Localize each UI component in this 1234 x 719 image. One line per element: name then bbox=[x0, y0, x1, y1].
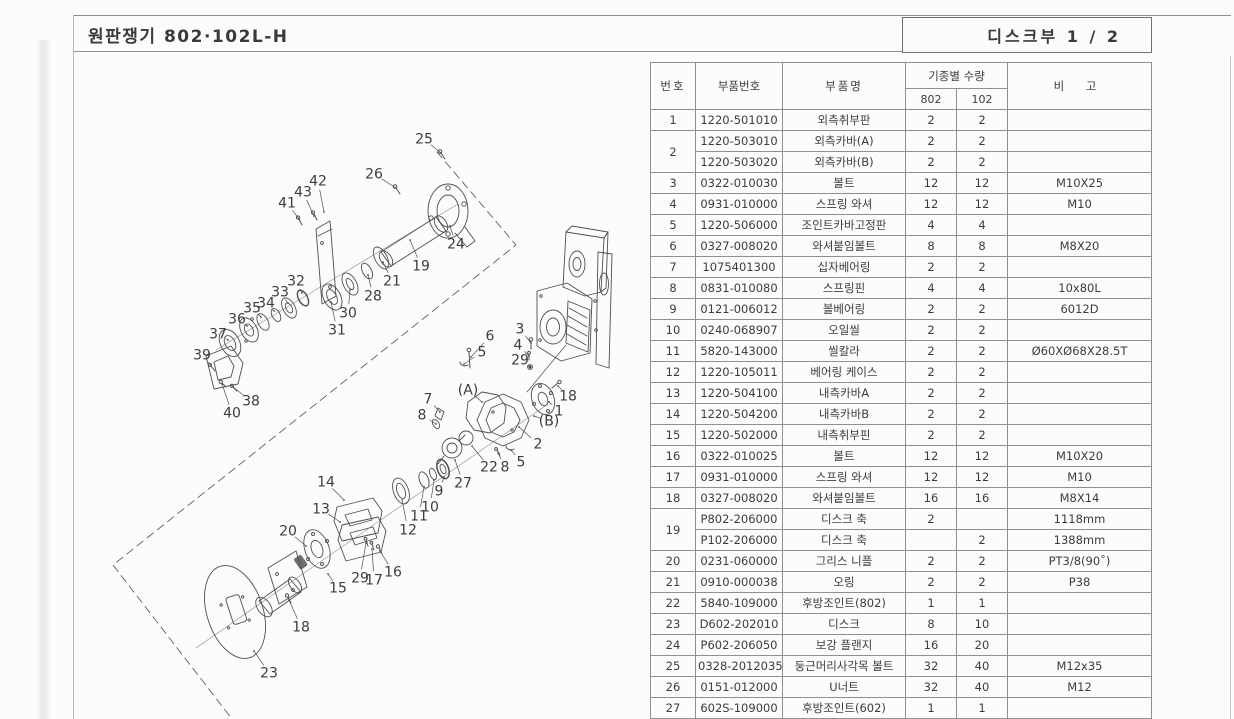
table-row: 200231-060000그리스 니플22PT3/8(90˚) bbox=[651, 551, 1152, 572]
table-row: 11220-501010외측취부판22 bbox=[651, 110, 1152, 131]
table-row: 30322-010030볼트1212M10X25 bbox=[651, 173, 1152, 194]
cell-qty-102: 12 bbox=[957, 173, 1008, 194]
callout-leader-line bbox=[320, 190, 324, 212]
diagram-callout-label: 21 bbox=[383, 274, 401, 290]
table-row: 24P602-206050보강 플랜지1620 bbox=[651, 635, 1152, 656]
cell-remark bbox=[1008, 425, 1152, 446]
cell-qty-802: 32 bbox=[906, 677, 957, 698]
callout-leader-dot bbox=[323, 211, 325, 213]
cell-qty-102: 2 bbox=[957, 299, 1008, 320]
callout-leader-dot bbox=[463, 363, 465, 365]
cell-part-name: 조인트카바고정판 bbox=[783, 215, 906, 236]
callout-leader-dot bbox=[530, 342, 532, 344]
callout-leader-line bbox=[331, 302, 335, 321]
cell-qty-102: 2 bbox=[957, 257, 1008, 278]
cell-no: 14 bbox=[651, 404, 696, 425]
callout-leader-dot bbox=[210, 365, 212, 367]
cell-qty-102 bbox=[957, 509, 1008, 530]
universal-joint-parts-22-27 bbox=[438, 431, 473, 464]
diagram-callout-label: 20 bbox=[279, 524, 297, 540]
table-row: 23D602-202010디스크810 bbox=[651, 614, 1152, 635]
cell-remark: 1388mm bbox=[1008, 530, 1152, 551]
diagram-callout-label: 4 bbox=[514, 338, 523, 354]
callout-leader-line bbox=[307, 200, 314, 216]
cell-part-no: 0931-010000 bbox=[696, 194, 783, 215]
table-row: 1220-503020외측카바(B)22 bbox=[651, 152, 1152, 173]
cell-qty-102: 2 bbox=[957, 551, 1008, 572]
cell-remark bbox=[1008, 215, 1152, 236]
cell-remark bbox=[1008, 131, 1152, 152]
callout-leader-dot bbox=[227, 339, 229, 341]
diagram-callout-label: 26 bbox=[365, 167, 383, 183]
cell-remark bbox=[1008, 404, 1152, 425]
cell-part-name: 볼트 bbox=[783, 446, 906, 467]
cell-part-name: 스프링 와셔 bbox=[783, 467, 906, 488]
cell-no: 24 bbox=[651, 635, 696, 656]
table-row: 71075401300십자베어링22 bbox=[651, 257, 1152, 278]
diagram-callout-label: 40 bbox=[223, 406, 241, 422]
diagram-callout-label: 37 bbox=[209, 327, 227, 343]
cell-remark: M10X20 bbox=[1008, 446, 1152, 467]
cell-qty-802: 12 bbox=[906, 446, 957, 467]
end-cover-part-38-40 bbox=[206, 346, 243, 389]
diagram-callout-label: 36 bbox=[228, 312, 246, 328]
cell-qty-102: 2 bbox=[957, 404, 1008, 425]
cell-part-no: 0151-012000 bbox=[696, 677, 783, 698]
table-row: 151220-502000내측취부핀22 bbox=[651, 425, 1152, 446]
callout-leader-dot bbox=[246, 325, 248, 327]
cell-no: 16 bbox=[651, 446, 696, 467]
callout-leader-dot bbox=[470, 356, 472, 358]
cell-part-no: 0322-010030 bbox=[696, 173, 783, 194]
cell-part-name: 오일씰 bbox=[783, 320, 906, 341]
cell-qty-102: 2 bbox=[957, 362, 1008, 383]
table-row: 80831-010080스프링핀4410x80L bbox=[651, 278, 1152, 299]
cell-part-no: 1220-501010 bbox=[696, 110, 783, 131]
callout-leader-line bbox=[292, 210, 299, 219]
cell-part-name: 와셔붙임볼트 bbox=[783, 236, 906, 257]
cell-qty-102: 20 bbox=[957, 635, 1008, 656]
diagram-callout-label: 38 bbox=[242, 394, 260, 410]
cell-no: 3 bbox=[651, 173, 696, 194]
cell-remark bbox=[1008, 320, 1152, 341]
cell-no: 15 bbox=[651, 425, 696, 446]
cell-qty-102: 4 bbox=[957, 278, 1008, 299]
callout-leader-dot bbox=[510, 449, 512, 451]
cell-part-no: 0910-000038 bbox=[696, 572, 783, 593]
cell-qty-802: 2 bbox=[906, 320, 957, 341]
callout-leader-dot bbox=[379, 550, 381, 552]
cell-remark: PT3/8(90˚) bbox=[1008, 551, 1152, 572]
cell-part-no: 1220-503010 bbox=[696, 131, 783, 152]
cell-qty-102: 12 bbox=[957, 446, 1008, 467]
diagram-callouts: 2526424341241921283031323334353637393840… bbox=[193, 132, 577, 682]
table-row: 60327-008020와셔붙임볼트88M8X20 bbox=[651, 236, 1152, 257]
cell-remark: M12x35 bbox=[1008, 656, 1152, 677]
callout-leader-dot bbox=[382, 261, 384, 263]
cell-part-no: 0327-008020 bbox=[696, 488, 783, 509]
cell-no: 26 bbox=[651, 677, 696, 698]
callout-leader-dot bbox=[533, 415, 535, 417]
cell-qty-802: 2 bbox=[906, 341, 957, 362]
cell-no: 17 bbox=[651, 467, 696, 488]
callout-leader-line bbox=[455, 460, 460, 474]
diagram-callout-label: 31 bbox=[328, 323, 346, 339]
cell-remark: M8X14 bbox=[1008, 488, 1152, 509]
cell-no: 4 bbox=[651, 194, 696, 215]
cell-no: 18 bbox=[651, 488, 696, 509]
ring-part-10 bbox=[428, 467, 438, 480]
cell-remark: M10X25 bbox=[1008, 173, 1152, 194]
cell-part-name: 디스크 축 bbox=[783, 509, 906, 530]
gearbox-drawing bbox=[527, 226, 612, 392]
diagram-callout-label: 7 bbox=[424, 392, 433, 408]
cell-qty-802: 12 bbox=[906, 194, 957, 215]
cell-part-no: 0328-2012035 bbox=[696, 656, 783, 677]
callout-leader-dot bbox=[557, 385, 559, 387]
table-row: 180327-008020와셔붙임볼트1616M8X14 bbox=[651, 488, 1152, 509]
callout-leader-line bbox=[472, 446, 483, 460]
parts-table-body: 11220-501010외측취부판2221220-503010외측카바(A)22… bbox=[651, 110, 1152, 719]
cell-qty-102: 10 bbox=[957, 614, 1008, 635]
callout-leader-dot bbox=[529, 366, 531, 368]
diagram-callout-label: 2 bbox=[534, 437, 543, 453]
cell-qty-102: 2 bbox=[957, 425, 1008, 446]
callout-leader-line bbox=[526, 336, 531, 343]
diagram-callout-label: 23 bbox=[260, 666, 278, 682]
callout-leader-dot bbox=[371, 548, 373, 550]
cell-remark bbox=[1008, 635, 1152, 656]
diagram-callout-label: 39 bbox=[193, 348, 211, 364]
diagram-callout-label: 5 bbox=[478, 345, 487, 361]
callout-leader-dot bbox=[301, 292, 303, 294]
cell-qty-102: 2 bbox=[957, 530, 1008, 551]
cell-no: 27 bbox=[651, 698, 696, 719]
table-row: 40931-010000스프링 와셔1212M10 bbox=[651, 194, 1152, 215]
cell-qty-102: 40 bbox=[957, 656, 1008, 677]
cell-remark: M10 bbox=[1008, 467, 1152, 488]
diagram-callout-label: 14 bbox=[317, 475, 335, 491]
cell-part-no: 5820-143000 bbox=[696, 341, 783, 362]
cell-remark: M10 bbox=[1008, 194, 1152, 215]
table-row: 225840-109000후방조인트(802)11 bbox=[651, 593, 1152, 614]
cell-no: 25 bbox=[651, 656, 696, 677]
cell-part-name: 후방조인트(602) bbox=[783, 698, 906, 719]
cell-part-no: 0240-068907 bbox=[696, 320, 783, 341]
callout-leader-line bbox=[380, 551, 388, 564]
header-part-no: 부품번호 bbox=[696, 63, 783, 110]
cell-qty-102: 12 bbox=[957, 467, 1008, 488]
callout-leader-dot bbox=[288, 599, 290, 601]
seal-collar-part-32 bbox=[295, 288, 311, 307]
table-row: 170931-010000스프링 와셔1212M10 bbox=[651, 467, 1152, 488]
cell-no: 20 bbox=[651, 551, 696, 572]
cell-qty-102: 2 bbox=[957, 152, 1008, 173]
shaft-tube bbox=[252, 575, 304, 620]
diagram-callout-label: 6 bbox=[486, 329, 495, 345]
callout-leader-dot bbox=[443, 476, 445, 478]
cell-part-no: 0322-010025 bbox=[696, 446, 783, 467]
cell-no: 5 bbox=[651, 215, 696, 236]
diagram-callout-label: 15 bbox=[329, 581, 347, 597]
diagram-callout-label: 22 bbox=[480, 460, 498, 476]
cell-remark bbox=[1008, 110, 1152, 131]
diagram-callout-label: 30 bbox=[339, 306, 357, 322]
callout-leader-dot bbox=[298, 218, 300, 220]
cell-no: 2 bbox=[651, 131, 696, 173]
table-row: 19P802-206000디스크 축21118mm bbox=[651, 509, 1152, 530]
callout-leader-dot bbox=[409, 239, 411, 241]
table-row: 100240-068907오일씰22 bbox=[651, 320, 1152, 341]
cell-part-name: 내측취부핀 bbox=[783, 425, 906, 446]
callout-leader-line bbox=[511, 450, 515, 455]
callout-leader-dot bbox=[365, 542, 367, 544]
cell-qty-802: 1 bbox=[906, 593, 957, 614]
callout-leader-dot bbox=[349, 289, 351, 291]
oilseal-ring-part-12 bbox=[389, 476, 412, 507]
diagram-callout-label: 18 bbox=[559, 389, 577, 405]
table-row: 51220-506000조인트카바고정판44 bbox=[651, 215, 1152, 236]
table-row: 260151-012000U너트3240M12 bbox=[651, 677, 1152, 698]
cell-no: 21 bbox=[651, 572, 696, 593]
table-row: 21220-503010외측카바(A)22 bbox=[651, 131, 1152, 152]
callout-leader-dot bbox=[232, 386, 234, 388]
cell-part-name: 내측카바A bbox=[783, 383, 906, 404]
header-model-802: 802 bbox=[906, 89, 957, 110]
header-remark: 비 고 bbox=[1008, 63, 1152, 110]
cell-part-no: 1075401300 bbox=[696, 257, 783, 278]
cell-no: 10 bbox=[651, 320, 696, 341]
cell-qty-102: 2 bbox=[957, 320, 1008, 341]
cell-qty-802: 2 bbox=[906, 572, 957, 593]
cell-remark bbox=[1008, 152, 1152, 173]
callout-leader-dot bbox=[395, 187, 397, 189]
cell-qty-802: 8 bbox=[906, 614, 957, 635]
table-row: 250328-2012035둥근머리사각목 볼트3240M12x35 bbox=[651, 656, 1152, 677]
cell-qty-802: 12 bbox=[906, 467, 957, 488]
callout-leader-dot bbox=[454, 459, 456, 461]
cell-qty-102: 12 bbox=[957, 194, 1008, 215]
cell-part-no: P802-206000 bbox=[696, 509, 783, 530]
cell-no: 22 bbox=[651, 593, 696, 614]
cell-qty-802: 2 bbox=[906, 383, 957, 404]
callout-leader-line bbox=[368, 275, 371, 287]
diagram-callout-label: 13 bbox=[312, 502, 330, 518]
cell-qty-802: 2 bbox=[906, 362, 957, 383]
cell-remark: 6012D bbox=[1008, 299, 1152, 320]
header-model-102: 102 bbox=[957, 89, 1008, 110]
cell-qty-102: 8 bbox=[957, 236, 1008, 257]
cell-qty-802: 2 bbox=[906, 299, 957, 320]
cell-part-name: 둥근머리사각목 볼트 bbox=[783, 656, 906, 677]
cell-remark bbox=[1008, 614, 1152, 635]
cell-part-no: 0231-060000 bbox=[696, 551, 783, 572]
cell-no: 8 bbox=[651, 278, 696, 299]
cell-remark: P38 bbox=[1008, 572, 1152, 593]
callout-leader-line bbox=[349, 290, 350, 304]
diagram-callout-label: 27 bbox=[454, 476, 472, 492]
cell-part-name: 그리스 니플 bbox=[783, 551, 906, 572]
cell-part-name: 와셔붙임볼트 bbox=[783, 488, 906, 509]
cell-qty-802: 4 bbox=[906, 215, 957, 236]
cell-qty-802: 12 bbox=[906, 173, 957, 194]
cell-qty-802: 2 bbox=[906, 404, 957, 425]
table-row: 131220-504100내측카바A22 bbox=[651, 383, 1152, 404]
parts-table-container: 번호 부품번호 부품명 기종별 수량 비 고 802 102 11220-501… bbox=[650, 62, 1153, 719]
callout-leader-dot bbox=[330, 301, 332, 303]
cell-qty-802: 2 bbox=[906, 257, 957, 278]
clamp-half-part-13 bbox=[338, 517, 386, 561]
diagram-callout-label: 18 bbox=[292, 620, 310, 636]
table-row: 160322-010025볼트1212M10X20 bbox=[651, 446, 1152, 467]
table-row: 27602S-109000후방조인트(602)11 bbox=[651, 698, 1152, 719]
diagram-callout-label: 29 bbox=[511, 353, 529, 369]
cell-part-name: 오링 bbox=[783, 572, 906, 593]
callout-leader-dot bbox=[518, 426, 520, 428]
diagram-callout-label: 8 bbox=[501, 460, 510, 476]
cell-qty-802: 8 bbox=[906, 236, 957, 257]
callout-leader-dot bbox=[313, 215, 315, 217]
cell-qty-802: 2 bbox=[906, 551, 957, 572]
header-no: 번호 bbox=[651, 63, 696, 110]
cell-part-name: 보강 플랜지 bbox=[783, 635, 906, 656]
cell-part-no: 1220-502000 bbox=[696, 425, 783, 446]
cell-remark bbox=[1008, 593, 1152, 614]
callout-leader-dot bbox=[253, 650, 255, 652]
diagram-callout-label: (B) bbox=[539, 414, 560, 430]
callout-leader-line bbox=[402, 500, 406, 521]
cell-qty-802 bbox=[906, 530, 957, 551]
diagram-callout-label: 9 bbox=[435, 484, 444, 500]
parts-table-header: 번호 부품번호 부품명 기종별 수량 비 고 802 102 bbox=[651, 63, 1152, 110]
callout-leader-dot bbox=[305, 545, 307, 547]
cell-remark: 10x80L bbox=[1008, 278, 1152, 299]
cell-remark bbox=[1008, 257, 1152, 278]
cell-no: 13 bbox=[651, 383, 696, 404]
cell-part-name: 스프링핀 bbox=[783, 278, 906, 299]
cell-part-no: P602-206050 bbox=[696, 635, 783, 656]
cell-remark: Ø60XØ68X28.5T bbox=[1008, 341, 1152, 362]
header-part-name: 부품명 bbox=[783, 63, 906, 110]
cell-no: 23 bbox=[651, 614, 696, 635]
callout-leader-line bbox=[254, 651, 264, 666]
cell-qty-102: 1 bbox=[957, 698, 1008, 719]
callout-leader-dot bbox=[221, 383, 223, 385]
cell-no: 6 bbox=[651, 236, 696, 257]
cell-no: 9 bbox=[651, 299, 696, 320]
cell-no: 12 bbox=[651, 362, 696, 383]
callout-leader-line bbox=[372, 549, 373, 571]
cell-part-name: 스프링 와셔 bbox=[783, 194, 906, 215]
table-row: 90121-006012볼베어링226012D bbox=[651, 299, 1152, 320]
lower-axis-centerline bbox=[196, 404, 548, 648]
cell-qty-802: 2 bbox=[906, 131, 957, 152]
cell-part-no: 1220-504100 bbox=[696, 383, 783, 404]
cell-no: 11 bbox=[651, 341, 696, 362]
diagram-callout-label: 29 bbox=[351, 571, 369, 587]
diagram-callout-label: 41 bbox=[278, 196, 296, 212]
cell-qty-102: 2 bbox=[957, 110, 1008, 131]
cell-qty-802: 2 bbox=[906, 152, 957, 173]
callout-leader-dot bbox=[433, 479, 435, 481]
cell-no: 7 bbox=[651, 257, 696, 278]
cell-qty-802: 2 bbox=[906, 110, 957, 131]
callout-leader-dot bbox=[343, 499, 345, 501]
table-row: P102-206000디스크 축21388mm bbox=[651, 530, 1152, 551]
callout-leader-dot bbox=[440, 152, 442, 154]
table-row: 121220-105011베어링 케이스22 bbox=[651, 362, 1152, 383]
diagram-callout-label: 5 bbox=[517, 455, 526, 471]
cell-part-name: 외측카바(B) bbox=[783, 152, 906, 173]
cell-part-no: 1220-504200 bbox=[696, 404, 783, 425]
cell-part-no: 1220-506000 bbox=[696, 215, 783, 236]
cell-remark: M8X20 bbox=[1008, 236, 1152, 257]
diagram-callout-label: (A) bbox=[458, 383, 479, 399]
cell-part-no: 1220-503020 bbox=[696, 152, 783, 173]
cell-remark bbox=[1008, 698, 1152, 719]
cell-qty-802: 1 bbox=[906, 698, 957, 719]
callout-leader-line bbox=[382, 179, 396, 188]
diagram-callout-label: 19 bbox=[412, 259, 430, 275]
callout-leader-dot bbox=[548, 401, 550, 403]
callout-leader-line bbox=[289, 600, 297, 619]
cell-part-no: 1220-105011 bbox=[696, 362, 783, 383]
cell-part-no: 602S-109000 bbox=[696, 698, 783, 719]
cell-part-name: 외측카바(A) bbox=[783, 131, 906, 152]
cell-part-name: 볼트 bbox=[783, 173, 906, 194]
cell-part-name: 베어링 케이스 bbox=[783, 362, 906, 383]
cell-qty-102: 2 bbox=[957, 341, 1008, 362]
cell-qty-802: 16 bbox=[906, 488, 957, 509]
callout-leader-dot bbox=[327, 573, 329, 575]
callout-leader-dot bbox=[287, 302, 289, 304]
cell-part-name: 십자베어링 bbox=[783, 257, 906, 278]
callout-leader-line bbox=[410, 240, 417, 258]
callout-leader-dot bbox=[471, 445, 473, 447]
cell-qty-102: 2 bbox=[957, 131, 1008, 152]
callout-leader-dot bbox=[401, 499, 403, 501]
diagram-callout-label: 32 bbox=[287, 274, 305, 290]
callout-leader-dot bbox=[449, 225, 451, 227]
parts-table: 번호 부품번호 부품명 기종별 수량 비 고 802 102 11220-501… bbox=[650, 62, 1152, 719]
cell-part-name: 디스크 bbox=[783, 614, 906, 635]
disc-part-23 bbox=[194, 558, 277, 667]
cell-part-name: U너트 bbox=[783, 677, 906, 698]
table-row: 210910-000038오링22P38 bbox=[651, 572, 1152, 593]
cell-part-name: 후방조인트(802) bbox=[783, 593, 906, 614]
diagram-callout-label: 28 bbox=[364, 289, 382, 305]
cell-part-name: 내측카바B bbox=[783, 404, 906, 425]
scanned-parts-catalog-page: { "page": { "title": "원판쟁기 802·102L-H", … bbox=[0, 0, 1234, 719]
cell-part-no: 0831-010080 bbox=[696, 278, 783, 299]
cell-part-no: P102-206000 bbox=[696, 530, 783, 551]
callout-leader-dot bbox=[481, 401, 483, 403]
cell-remark bbox=[1008, 362, 1152, 383]
diagram-callout-label: 25 bbox=[415, 132, 433, 148]
cell-part-no: 0931-010000 bbox=[696, 467, 783, 488]
diagram-callout-label: 12 bbox=[399, 523, 417, 539]
cell-qty-102: 16 bbox=[957, 488, 1008, 509]
cell-qty-802: 2 bbox=[906, 425, 957, 446]
cell-no: 19 bbox=[651, 509, 696, 551]
cell-part-no: 0121-006012 bbox=[696, 299, 783, 320]
diagram-callout-label: 43 bbox=[294, 185, 312, 201]
cell-remark: M12 bbox=[1008, 677, 1152, 698]
cell-remark bbox=[1008, 383, 1152, 404]
cell-part-name: 씰칼라 bbox=[783, 341, 906, 362]
cell-qty-802: 32 bbox=[906, 656, 957, 677]
callout-leader-dot bbox=[435, 423, 437, 425]
